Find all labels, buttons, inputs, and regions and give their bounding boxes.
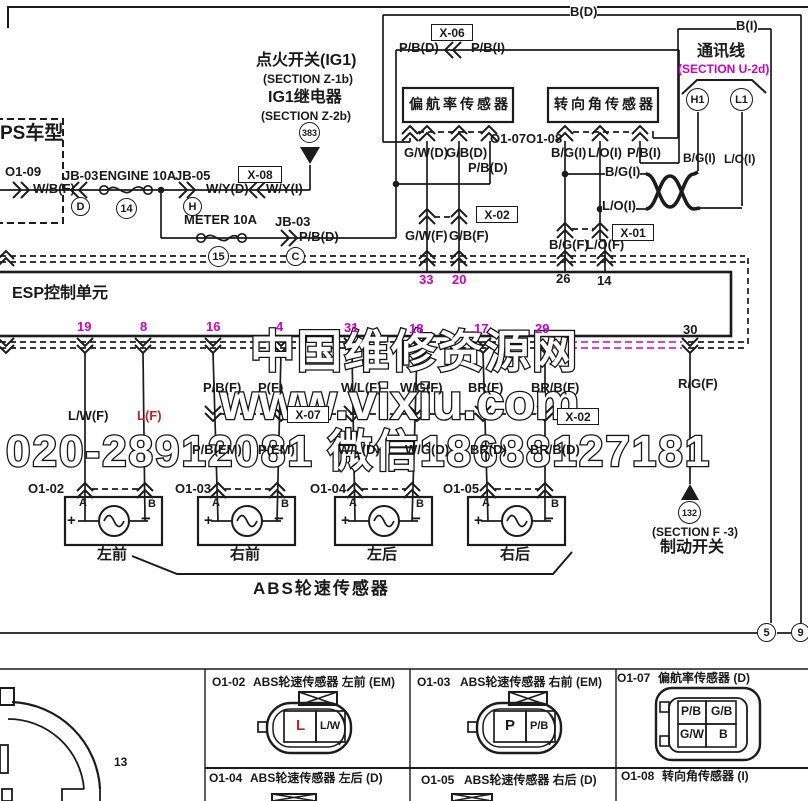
connector-13: 13 xyxy=(114,756,127,768)
pin-a2: A xyxy=(212,498,220,509)
tbl-o1-07: O1-07 xyxy=(617,672,650,684)
pin-16: 16 xyxy=(206,320,220,333)
wire-br-d: BR(D) xyxy=(470,443,507,456)
sensor-rear-left: 左后 xyxy=(367,547,397,562)
plus-4: + xyxy=(474,513,483,528)
minus-3: − xyxy=(411,510,421,527)
wire-wb-f: W/B(F) xyxy=(33,182,75,195)
wire-pb-d-x06: P/B(D) xyxy=(399,41,439,54)
tbl-o1-08: O1-08 xyxy=(621,770,654,782)
tbl-o1-04-desc: ABS轮速传感器 左后 (D) xyxy=(250,772,383,784)
wire-wl-d: W/L(D) xyxy=(338,443,380,456)
connector-ref-o1-05: O1-05 xyxy=(443,482,479,495)
pin-33: 33 xyxy=(419,273,433,286)
pin-a1: A xyxy=(79,498,87,509)
pin-20: 20 xyxy=(452,273,466,286)
abs-sensors-title: ABS轮速传感器 xyxy=(253,580,390,597)
ignition-switch-title: 点火开关(IG1) xyxy=(256,53,356,69)
plus-2: + xyxy=(204,513,213,528)
connector-ref-o1-09: O1-09 xyxy=(5,165,41,178)
sensor-front-right: 右前 xyxy=(230,547,260,562)
wire-l-f: L(F) xyxy=(137,409,162,422)
wire-pb-i2: P/B(I) xyxy=(627,146,661,159)
ig1-relay-title: IG1继电器 xyxy=(268,90,342,106)
wire-lo-i-leg: L/O(I) xyxy=(724,153,755,165)
tbl-o1-07-desc: 偏航率传感器 (D) xyxy=(658,672,750,684)
tbl-o1-08-desc: 转向角传感器 (I) xyxy=(662,770,749,782)
pin-31: 31 xyxy=(344,321,358,334)
connector-x01: X-01 xyxy=(612,224,654,241)
wire-b-i-top: B(I) xyxy=(736,19,758,32)
wire-pb-i-x06: P/B(I) xyxy=(471,41,505,54)
minus-1: − xyxy=(141,510,151,527)
fuse-no-14: 14 xyxy=(116,198,137,219)
junction-jb03-b: JB-03 xyxy=(275,215,310,228)
wire-pb-d2: P/B(D) xyxy=(468,161,508,174)
wire-brb-d: BR/B(D) xyxy=(530,443,580,456)
connector-x02-top: X-02 xyxy=(476,206,518,223)
connector-ref-o1-08: O1-08 xyxy=(526,132,562,145)
conn-pin-b: B xyxy=(719,728,728,740)
section-z1b: (SECTION Z-1b) xyxy=(263,73,353,85)
wire-wy-d: W/Y(D) xyxy=(206,182,249,195)
pin-19: 19 xyxy=(77,320,91,333)
minus-4: − xyxy=(544,510,554,527)
splice-d: D xyxy=(71,197,90,216)
junction-jb03-a: JB-03 xyxy=(63,169,98,182)
connector-ref-o1-07: O1-07 xyxy=(490,132,526,145)
page-ref-383: 383 xyxy=(299,122,320,143)
sensor-rear-right: 右后 xyxy=(500,547,530,562)
connector-ref-o1-03: O1-03 xyxy=(175,482,211,495)
section-u2d: (SECTION U-2d) xyxy=(678,63,769,75)
can-low-l1: L1 xyxy=(730,88,753,111)
conn-pin-l: L xyxy=(296,718,305,733)
wire-p-f: P(F) xyxy=(258,381,283,394)
wire-pb-d-meter: P/B(D) xyxy=(299,230,339,243)
tbl-o1-05: O1-05 xyxy=(421,774,454,786)
wire-p-em: P(EM) xyxy=(258,443,295,456)
pin-29: 29 xyxy=(535,322,549,335)
page-ref-5: 5 xyxy=(757,623,776,642)
wire-br-f: BR(F) xyxy=(468,381,503,394)
section-f3: (SECTION F -3) xyxy=(652,526,738,538)
pin-a3: A xyxy=(349,498,357,509)
esp-unit-title: ESP控制单元 xyxy=(12,286,108,302)
pin-4: 4 xyxy=(276,320,283,333)
tbl-o1-04: O1-04 xyxy=(209,772,242,784)
wire-bg-i: B/G(I) xyxy=(551,146,586,159)
pin-17: 17 xyxy=(474,322,488,335)
wire-lw-f: L/W(F) xyxy=(68,409,108,422)
conn-pin-p: P xyxy=(505,718,515,733)
connector-ref-o1-04: O1-04 xyxy=(310,482,346,495)
wire-rg-f: R/G(F) xyxy=(678,377,718,390)
brake-switch-title: 制动开关 xyxy=(660,540,724,556)
section-z2b: (SECTION Z-2b) xyxy=(261,110,351,122)
pin-26: 26 xyxy=(556,272,570,285)
fuse-engine-10a: ENGINE 10A xyxy=(99,169,176,182)
wire-b-d-top: B(D) xyxy=(570,5,597,18)
wire-bg-i-leg: B/G(I) xyxy=(683,152,716,164)
wire-brb-f: BR/B(F) xyxy=(531,381,579,394)
can-high-h1: H1 xyxy=(686,88,709,111)
pin-a4: A xyxy=(482,498,490,509)
pin-18: 18 xyxy=(409,322,423,335)
wire-lo-i: L/O(I) xyxy=(588,146,622,159)
tbl-o1-02: O1-02 xyxy=(212,676,245,688)
connector-x06: X-06 xyxy=(431,24,473,41)
conn-pin-pb2: P/B xyxy=(681,705,701,717)
connector-ref-o1-02: O1-02 xyxy=(28,482,64,495)
wire-gb-d: G/B(D) xyxy=(446,146,487,159)
connector-x08: X-08 xyxy=(238,166,282,183)
wire-gw-f: G/W(F) xyxy=(405,229,448,242)
tbl-o1-05-desc: ABS轮速传感器 右后 (D) xyxy=(464,774,597,786)
minus-2: − xyxy=(274,510,284,527)
sensor-front-left: 左前 xyxy=(97,547,127,562)
wire-wy-i: W/Y(I) xyxy=(266,182,303,195)
tbl-o1-03-desc: ABS轮速传感器 右前 (EM) xyxy=(460,676,602,688)
splice-c: C xyxy=(286,247,305,266)
splice-h: H xyxy=(183,197,202,216)
pin-14: 14 xyxy=(597,274,611,287)
fuse-no-15: 15 xyxy=(208,246,229,267)
tbl-o1-03: O1-03 xyxy=(417,676,450,688)
pin-8: 8 xyxy=(140,320,147,333)
connector-x02-bottom: X-02 xyxy=(557,408,599,425)
conn-pin-lw: L/W xyxy=(320,721,340,732)
page-ref-9: 9 xyxy=(791,623,808,642)
tbl-o1-02-desc: ABS轮速传感器 左前 (EM) xyxy=(253,676,395,688)
page-ref-132: 132 xyxy=(678,501,701,524)
wire-wg-d: W/G(D) xyxy=(405,443,449,456)
wire-bg-f: B/G(F) xyxy=(549,238,589,251)
wire-wg-f: W/G(F) xyxy=(400,381,443,394)
pin-30: 30 xyxy=(683,323,697,336)
wire-pb-em: P/B(EM) xyxy=(192,443,242,456)
conn-pin-gw: G/W xyxy=(680,728,704,740)
conn-pin-pb: P/B xyxy=(530,721,548,732)
model-variant: PS车型 xyxy=(0,124,63,143)
connector-x07: X-07 xyxy=(287,406,329,423)
steer-sensor-title: 转向角传感器 xyxy=(554,97,656,111)
yaw-sensor-title: 偏航率传感器 xyxy=(409,97,511,111)
plus-1: + xyxy=(67,513,76,528)
wire-bg-i-branch: B/G(I) xyxy=(605,165,640,178)
plus-3: + xyxy=(341,513,350,528)
wire-gb-f: G/B(F) xyxy=(449,229,489,242)
comm-line-title: 通讯线 xyxy=(697,44,745,60)
wiring-diagram-page: 中国维修资源网 www.vixiu.com 020-28912081 微信186… xyxy=(0,0,808,801)
wire-pb-f: P/B(F) xyxy=(203,381,241,394)
conn-pin-gb: G/B xyxy=(711,705,732,717)
wire-wl-f: W/L(F) xyxy=(341,381,381,394)
wire-gw-d: G/W(D) xyxy=(404,146,448,159)
wire-lo-i-branch: L/O(I) xyxy=(602,199,636,212)
